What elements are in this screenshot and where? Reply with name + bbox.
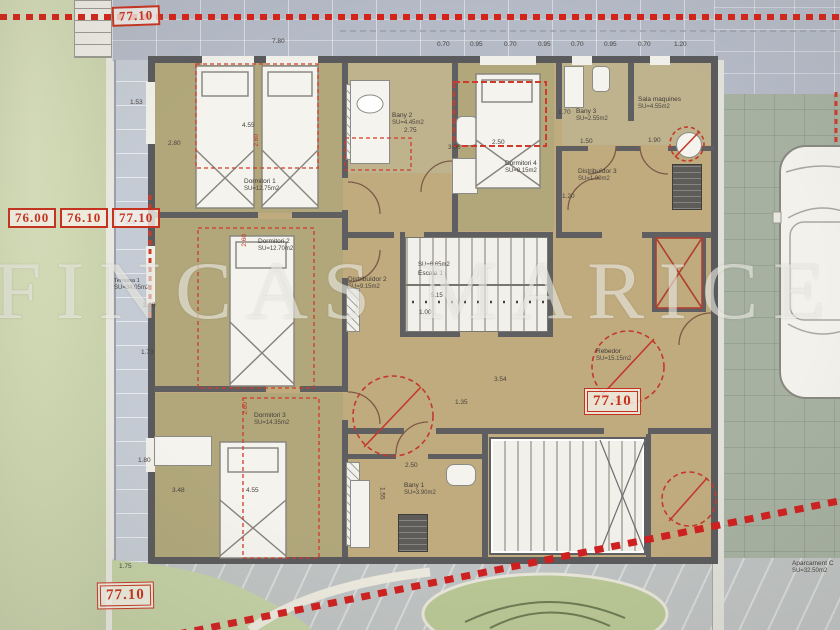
wall [616, 146, 640, 151]
duct [452, 158, 478, 194]
shaft-wall [652, 308, 706, 312]
sink-counter [350, 80, 390, 164]
dim-label: 0.70 [571, 42, 584, 49]
dim-label: 0.70 [437, 42, 450, 49]
boiler [676, 132, 702, 158]
dim-label: 2.80 [143, 303, 156, 310]
dim-label: 1.00 [419, 310, 432, 317]
wall [482, 434, 488, 558]
paving-bottom [112, 558, 840, 630]
dim-label: 3.54 [494, 377, 507, 384]
wall [348, 428, 404, 434]
stair-wall [548, 232, 553, 337]
toilet [592, 66, 610, 92]
shaft-wall [702, 236, 706, 312]
window [146, 246, 155, 304]
dim-label: 1.55 [378, 487, 385, 500]
dim-label: 1.50 [580, 139, 593, 146]
elevation-marker-rebedor: 77.10 [584, 388, 641, 415]
toilet [446, 464, 476, 486]
dim-label: 3.48 [172, 488, 185, 495]
window [202, 56, 254, 65]
dim-label: 2.75 [404, 128, 417, 135]
label-dormitori-2: Dormitori 2SU=12.70m2 [258, 238, 293, 254]
shower [398, 514, 428, 552]
label-distribuidor-3: Distribuïdor 3SU=1.90m2 [578, 168, 617, 184]
label-dormitori-4: Dormitori 4SU=8.15m2 [505, 160, 537, 176]
dim-label: 0.70 [638, 42, 651, 49]
label-dormitori-1: Dormitori 1SU=12.75m2 [244, 178, 279, 194]
room-dormitori-2 [155, 219, 343, 387]
terrace-strip [114, 60, 148, 562]
shaft-wall [652, 236, 656, 312]
room-dormitori-3 [155, 393, 343, 557]
dim-label: 2.80 [168, 141, 181, 148]
dim-label: 0.95 [604, 42, 617, 49]
wall [560, 232, 602, 238]
dim-label: 0.70 [504, 42, 517, 49]
dim-label-red: 2.60 [254, 134, 261, 147]
stair-escala-1 [405, 237, 548, 332]
dim-label: 1.90 [648, 138, 661, 145]
wall [648, 428, 712, 434]
window [266, 56, 318, 65]
driveway-paving [714, 94, 840, 630]
dim-label: 0.95 [538, 42, 551, 49]
elevation-marker-76-10: 76.10 [60, 208, 108, 228]
dim-label: 1.20 [562, 194, 575, 201]
wall [154, 386, 266, 392]
dim-label: 1.53 [130, 100, 143, 107]
label-terrassa-1: Terrassa 1SU=34.05m2 [114, 278, 149, 293]
label-bany-2: Bany 2SU=4.45m2 [392, 112, 424, 128]
dim-label-red: 2.60 [243, 402, 250, 415]
exterior-steps [74, 0, 112, 58]
dim-label: 3.06 [448, 145, 461, 152]
dim-label: 5.15 [431, 293, 443, 299]
dim-label-red: 2.60 [242, 234, 249, 247]
dim-label: 1.75 [119, 564, 132, 571]
dim-label: 7.80 [272, 39, 285, 46]
elevation-marker-top: 77.10 [112, 5, 161, 27]
dim-label: 0.95 [470, 42, 483, 49]
garden-area [0, 0, 112, 630]
machine-unit [672, 164, 702, 210]
stair-wall [400, 332, 460, 337]
elevation-marker-77-10-left: 77.10 [112, 208, 160, 228]
wall [292, 212, 348, 218]
wall [154, 212, 258, 218]
shower-bany-3 [564, 66, 584, 108]
dim-label: 1.35 [455, 400, 468, 407]
wall [300, 386, 348, 392]
label-distribuidor-2: Distribuïdor 2SU=9.15m2 [348, 276, 387, 292]
stair-wall [498, 332, 553, 337]
wall [556, 146, 562, 238]
room-dormitori-4 [458, 63, 554, 231]
window [650, 56, 670, 65]
wall [436, 428, 604, 434]
elevation-marker-bottom: 77.10 [97, 582, 154, 609]
dim-label: 2.50 [405, 463, 418, 470]
dim-label: 2.50 [492, 140, 505, 147]
window [572, 56, 592, 65]
label-bany-1: Bany 1SU=3.90m2 [404, 482, 436, 498]
toilet [456, 116, 478, 146]
dim-label: 1.70 [558, 110, 571, 117]
dim-label: 1.73 [141, 350, 154, 357]
label-sala-maquines: Sala maquinesSU=4.55m2 [638, 96, 681, 112]
label-dormitori-3: Dormitori 3SU=14.35m2 [254, 412, 289, 428]
label-aparcament-c: Aparcament CSU=32.50m2 [792, 560, 834, 576]
stair-lower [489, 437, 646, 555]
wall [428, 454, 484, 459]
window [480, 56, 536, 65]
wall [646, 434, 651, 558]
dim-label: 4.55 [246, 488, 259, 495]
wall [562, 146, 588, 151]
dim-label: 1.20 [674, 42, 687, 49]
closet-dormitori-3 [154, 436, 212, 466]
window [146, 82, 155, 144]
label-bany-3: Bany 3SU=2.55m2 [576, 108, 608, 124]
dim-label: 1.80 [138, 458, 151, 465]
wall [348, 454, 396, 459]
label-escala-1: SU=6.65m2Escala 1 [418, 262, 450, 278]
floor-plan-scan: 77.10 76.00 76.10 77.10 77.10 77.10 Dorm… [0, 0, 840, 630]
label-rebedor: RebedorSU=15.15m2 [596, 348, 631, 364]
wall [628, 63, 634, 121]
bathtub [350, 480, 370, 548]
dim-label: 4.55 [242, 123, 255, 130]
wardrobe [346, 288, 360, 332]
elevation-marker-76-00: 76.00 [8, 208, 56, 228]
wall [348, 232, 394, 238]
